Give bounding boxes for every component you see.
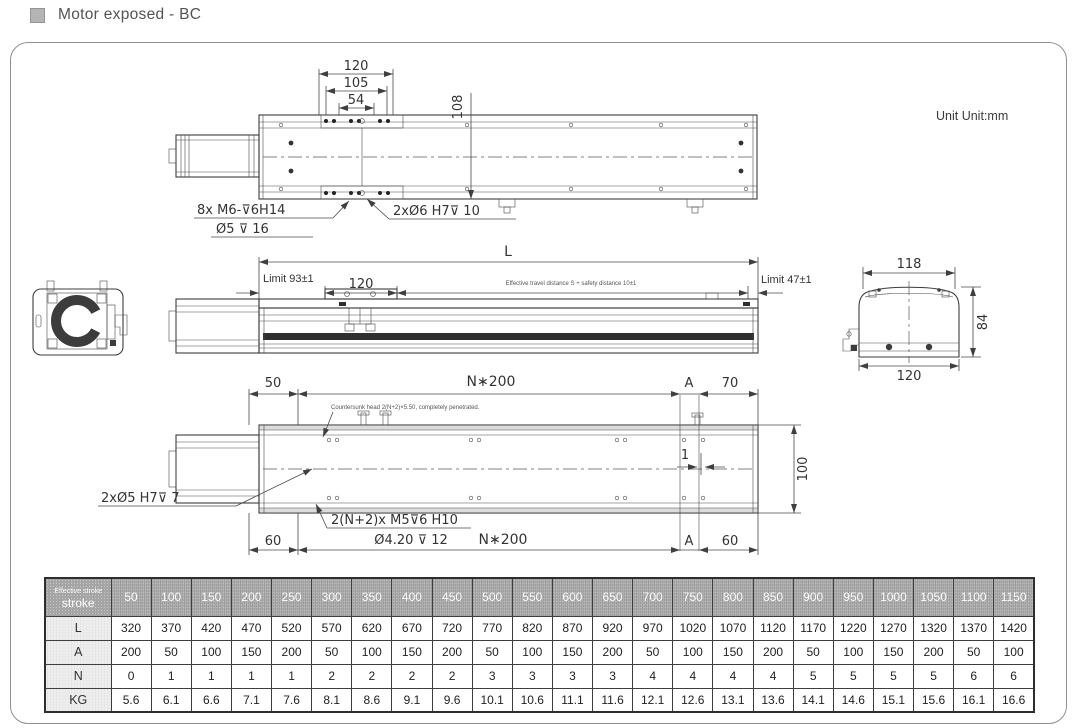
row-label: N — [45, 664, 111, 688]
table-cell: 3 — [552, 664, 592, 688]
stroke-col-header: 100 — [151, 578, 191, 616]
table-cell: 8.1 — [312, 688, 352, 712]
table-cell: 12.1 — [633, 688, 673, 712]
table-cell: 9.1 — [392, 688, 432, 712]
section-marker-icon — [30, 8, 45, 23]
note-phi5: Ø5 ⊽ 16 — [216, 222, 269, 237]
table-cell: 1120 — [753, 616, 793, 640]
stroke-col-header: 750 — [673, 578, 713, 616]
stroke-col-header: 150 — [191, 578, 231, 616]
table-cell: 5 — [833, 664, 873, 688]
bottom-view: 50 N∗200 A 70 60 A 60 100 1 Countersunk … — [98, 374, 811, 555]
table-cell: 14.6 — [833, 688, 873, 712]
table-cell: 50 — [793, 640, 833, 664]
table-cell: 100 — [994, 640, 1034, 664]
bottom-view-motor — [169, 435, 259, 503]
table-cell: 150 — [713, 640, 753, 664]
limit-left-label: Limit 93±1 — [263, 273, 314, 285]
front-view-dimensions: L Limit 93±1 120 Effective travel distan… — [236, 244, 812, 299]
table-cell: 2 — [392, 664, 432, 688]
page-title: Motor exposed - BC — [58, 6, 201, 24]
table-cell: 1 — [272, 664, 312, 688]
table-cell: 50 — [633, 640, 673, 664]
front-view-body — [259, 293, 758, 353]
stroke-table-body: Effective stroke stroke 5010015020025030… — [45, 578, 1034, 712]
dim-100: 100 — [796, 457, 811, 482]
table-cell: 9.6 — [432, 688, 472, 712]
note-m6: 8x M6-⊽6H14 — [197, 203, 285, 218]
table-cell: 1270 — [873, 616, 913, 640]
stroke-col-header: 50 — [111, 578, 151, 616]
table-cell: 100 — [833, 640, 873, 664]
table-cell: 3 — [472, 664, 512, 688]
stroke-col-header: 800 — [713, 578, 753, 616]
table-cell: 820 — [512, 616, 552, 640]
dim-60-left: 60 — [265, 534, 282, 549]
stroke-header-row: Effective stroke stroke 5010015020025030… — [45, 578, 1034, 616]
dim-1: 1 — [681, 448, 689, 463]
dim-118: 118 — [897, 257, 922, 272]
table-cell: 4 — [673, 664, 713, 688]
table-cell: 2 — [352, 664, 392, 688]
table-cell: 1370 — [954, 616, 994, 640]
top-view-rail — [259, 115, 757, 213]
table-cell: 150 — [873, 640, 913, 664]
table-cell: 4 — [753, 664, 793, 688]
dim-70: 70 — [722, 376, 739, 391]
table-cell: 1420 — [994, 616, 1034, 640]
note-phi5h7: 2xØ5 H7⊽ 7 — [101, 491, 180, 506]
unit-label: Unit Unit:mm — [936, 109, 1008, 123]
table-cell: 670 — [392, 616, 432, 640]
technical-drawing: Unit Unit:mm — [11, 43, 1068, 578]
table-cell: 7.6 — [272, 688, 312, 712]
table-cell: 100 — [512, 640, 552, 664]
travel-note: Effective travel distance S + safety dis… — [506, 281, 637, 287]
dim-108: 108 — [451, 95, 466, 120]
front-view-motor — [169, 299, 259, 353]
table-cell: 370 — [151, 616, 191, 640]
table-cell: 2 — [312, 664, 352, 688]
motor-face-view — [33, 281, 127, 355]
motor-coupling-c-ring — [56, 300, 98, 342]
table-cell: 100 — [352, 640, 392, 664]
effective-stroke-label: Effective stroke — [46, 587, 111, 596]
table-cell: 50 — [312, 640, 352, 664]
table-cell: 920 — [593, 616, 633, 640]
table-cell: 5.6 — [111, 688, 151, 712]
table-cell: 15.1 — [873, 688, 913, 712]
table-cell: 3 — [593, 664, 633, 688]
stroke-col-header: 200 — [231, 578, 271, 616]
label-a-bottom: A — [685, 534, 694, 549]
stroke-col-header: 1100 — [954, 578, 994, 616]
limit-right-label: Limit 47±1 — [761, 274, 812, 286]
table-cell: 520 — [272, 616, 312, 640]
table-cell: 470 — [231, 616, 271, 640]
table-cell: 16.6 — [994, 688, 1034, 712]
row-label: KG — [45, 688, 111, 712]
table-cell: 1320 — [914, 616, 954, 640]
table-cell: 1070 — [713, 616, 753, 640]
table-cell: 1020 — [673, 616, 713, 640]
stroke-col-header: 400 — [392, 578, 432, 616]
table-cell: 1 — [231, 664, 271, 688]
stroke-label: stroke — [46, 596, 111, 610]
table-cell: 150 — [231, 640, 271, 664]
note-phi420: Ø4.20 ⊽ 12 — [374, 533, 448, 548]
label-a-top: A — [685, 376, 694, 391]
top-view-dimensions: 120 105 54 108 — [319, 59, 471, 199]
stroke-col-header: 550 — [512, 578, 552, 616]
stroke-col-header: 500 — [472, 578, 512, 616]
dim-50: 50 — [265, 376, 282, 391]
table-cell: 150 — [552, 640, 592, 664]
stroke-col-header: 900 — [793, 578, 833, 616]
table-cell: 720 — [432, 616, 472, 640]
table-cell: 10.1 — [472, 688, 512, 712]
table-cell: 14.1 — [793, 688, 833, 712]
top-view: 120 105 54 108 8x M6-⊽6H14 Ø5 ⊽ 16 2xØ6 … — [169, 59, 757, 237]
table-cell: 6 — [994, 664, 1034, 688]
table-cell: 5 — [914, 664, 954, 688]
table-row-n: N01111222233334444555566 — [45, 664, 1034, 688]
table-row-a: A200501001502005010015020050100150200501… — [45, 640, 1034, 664]
table-cell: 50 — [151, 640, 191, 664]
top-view-notes: 8x M6-⊽6H14 Ø5 ⊽ 16 2xØ6 H7⊽ 10 — [194, 199, 516, 237]
note-m5: 2(N+2)x M5⊽6 H10 — [331, 513, 458, 528]
table-cell: 11.6 — [593, 688, 633, 712]
row-label: L — [45, 616, 111, 640]
table-cell: 4 — [633, 664, 673, 688]
table-cell: 320 — [111, 616, 151, 640]
table-row-kg: KG5.66.16.67.17.68.18.69.19.610.110.611.… — [45, 688, 1034, 712]
front-view: L Limit 93±1 120 Effective travel distan… — [169, 244, 812, 353]
stroke-col-header: 250 — [272, 578, 312, 616]
cross-section-dimensions: 118 84 120 — [859, 257, 991, 384]
dim-n200-top: N∗200 — [467, 374, 516, 390]
table-cell: 420 — [191, 616, 231, 640]
spec-table-container: Effective stroke stroke 5010015020025030… — [44, 577, 1035, 713]
stroke-col-header: 300 — [312, 578, 352, 616]
table-cell: 6 — [954, 664, 994, 688]
dim-54: 54 — [348, 93, 365, 108]
table-cell: 0 — [111, 664, 151, 688]
table-cell: 620 — [352, 616, 392, 640]
dim-120-section: 120 — [897, 369, 922, 384]
dim-105: 105 — [344, 76, 369, 91]
table-cell: 50 — [954, 640, 994, 664]
row-label: A — [45, 640, 111, 664]
table-cell: 570 — [312, 616, 352, 640]
table-cell: 1170 — [793, 616, 833, 640]
table-cell: 200 — [111, 640, 151, 664]
table-cell: 8.6 — [352, 688, 392, 712]
dim-L: L — [504, 244, 512, 260]
table-cell: 970 — [633, 616, 673, 640]
table-cell: 770 — [472, 616, 512, 640]
table-cell: 6.1 — [151, 688, 191, 712]
stroke-col-header: 700 — [633, 578, 673, 616]
stroke-col-header: 350 — [352, 578, 392, 616]
drawing-frame: Unit Unit:mm — [10, 42, 1067, 724]
countersunk-note: Countersunk head 2(N+2)×5.50, completely… — [331, 405, 480, 411]
table-cell: 200 — [914, 640, 954, 664]
table-cell: 13.6 — [753, 688, 793, 712]
table-cell: 15.6 — [914, 688, 954, 712]
dim-120-top: 120 — [344, 59, 369, 74]
dim-84: 84 — [976, 314, 991, 331]
table-cell: 1220 — [833, 616, 873, 640]
table-cell: 200 — [593, 640, 633, 664]
top-view-motor — [169, 135, 259, 177]
stroke-col-header: 950 — [833, 578, 873, 616]
table-cell: 2 — [432, 664, 472, 688]
table-cell: 1 — [151, 664, 191, 688]
stroke-table: Effective stroke stroke 5010015020025030… — [44, 577, 1035, 713]
page: { "header": { "title": "Motor exposed - … — [0, 0, 1077, 728]
stroke-col-header: 650 — [593, 578, 633, 616]
page-header: Motor exposed - BC — [30, 6, 201, 24]
table-cell: 13.1 — [713, 688, 753, 712]
stroke-col-header: 1050 — [914, 578, 954, 616]
table-cell: 200 — [753, 640, 793, 664]
table-cell: 100 — [673, 640, 713, 664]
stroke-col-header: 600 — [552, 578, 592, 616]
table-cell: 100 — [191, 640, 231, 664]
table-cell: 200 — [432, 640, 472, 664]
table-cell: 10.6 — [512, 688, 552, 712]
table-cell: 200 — [272, 640, 312, 664]
stroke-header-cell: Effective stroke stroke — [45, 578, 111, 616]
table-cell: 5 — [873, 664, 913, 688]
stroke-col-header: 1000 — [873, 578, 913, 616]
table-cell: 12.6 — [673, 688, 713, 712]
stroke-col-header: 1150 — [994, 578, 1034, 616]
note-phi6: 2xØ6 H7⊽ 10 — [393, 204, 480, 219]
table-cell: 4 — [713, 664, 753, 688]
table-cell: 7.1 — [231, 688, 271, 712]
table-cell: 870 — [552, 616, 592, 640]
stroke-col-header: 450 — [432, 578, 472, 616]
table-cell: 5 — [793, 664, 833, 688]
table-row-l: L320370420470520570620670720770820870920… — [45, 616, 1034, 640]
table-cell: 1 — [191, 664, 231, 688]
table-cell: 50 — [472, 640, 512, 664]
stroke-col-header: 850 — [753, 578, 793, 616]
table-cell: 11.1 — [552, 688, 592, 712]
dim-60-right: 60 — [722, 534, 739, 549]
table-cell: 3 — [512, 664, 552, 688]
table-cell: 16.1 — [954, 688, 994, 712]
dim-120-carriage: 120 — [349, 277, 374, 292]
table-cell: 150 — [392, 640, 432, 664]
dim-n200-bottom: N∗200 — [479, 532, 528, 548]
cross-section-view: 118 84 120 — [843, 257, 991, 384]
front-view-carriage — [325, 289, 397, 331]
table-cell: 6.6 — [191, 688, 231, 712]
